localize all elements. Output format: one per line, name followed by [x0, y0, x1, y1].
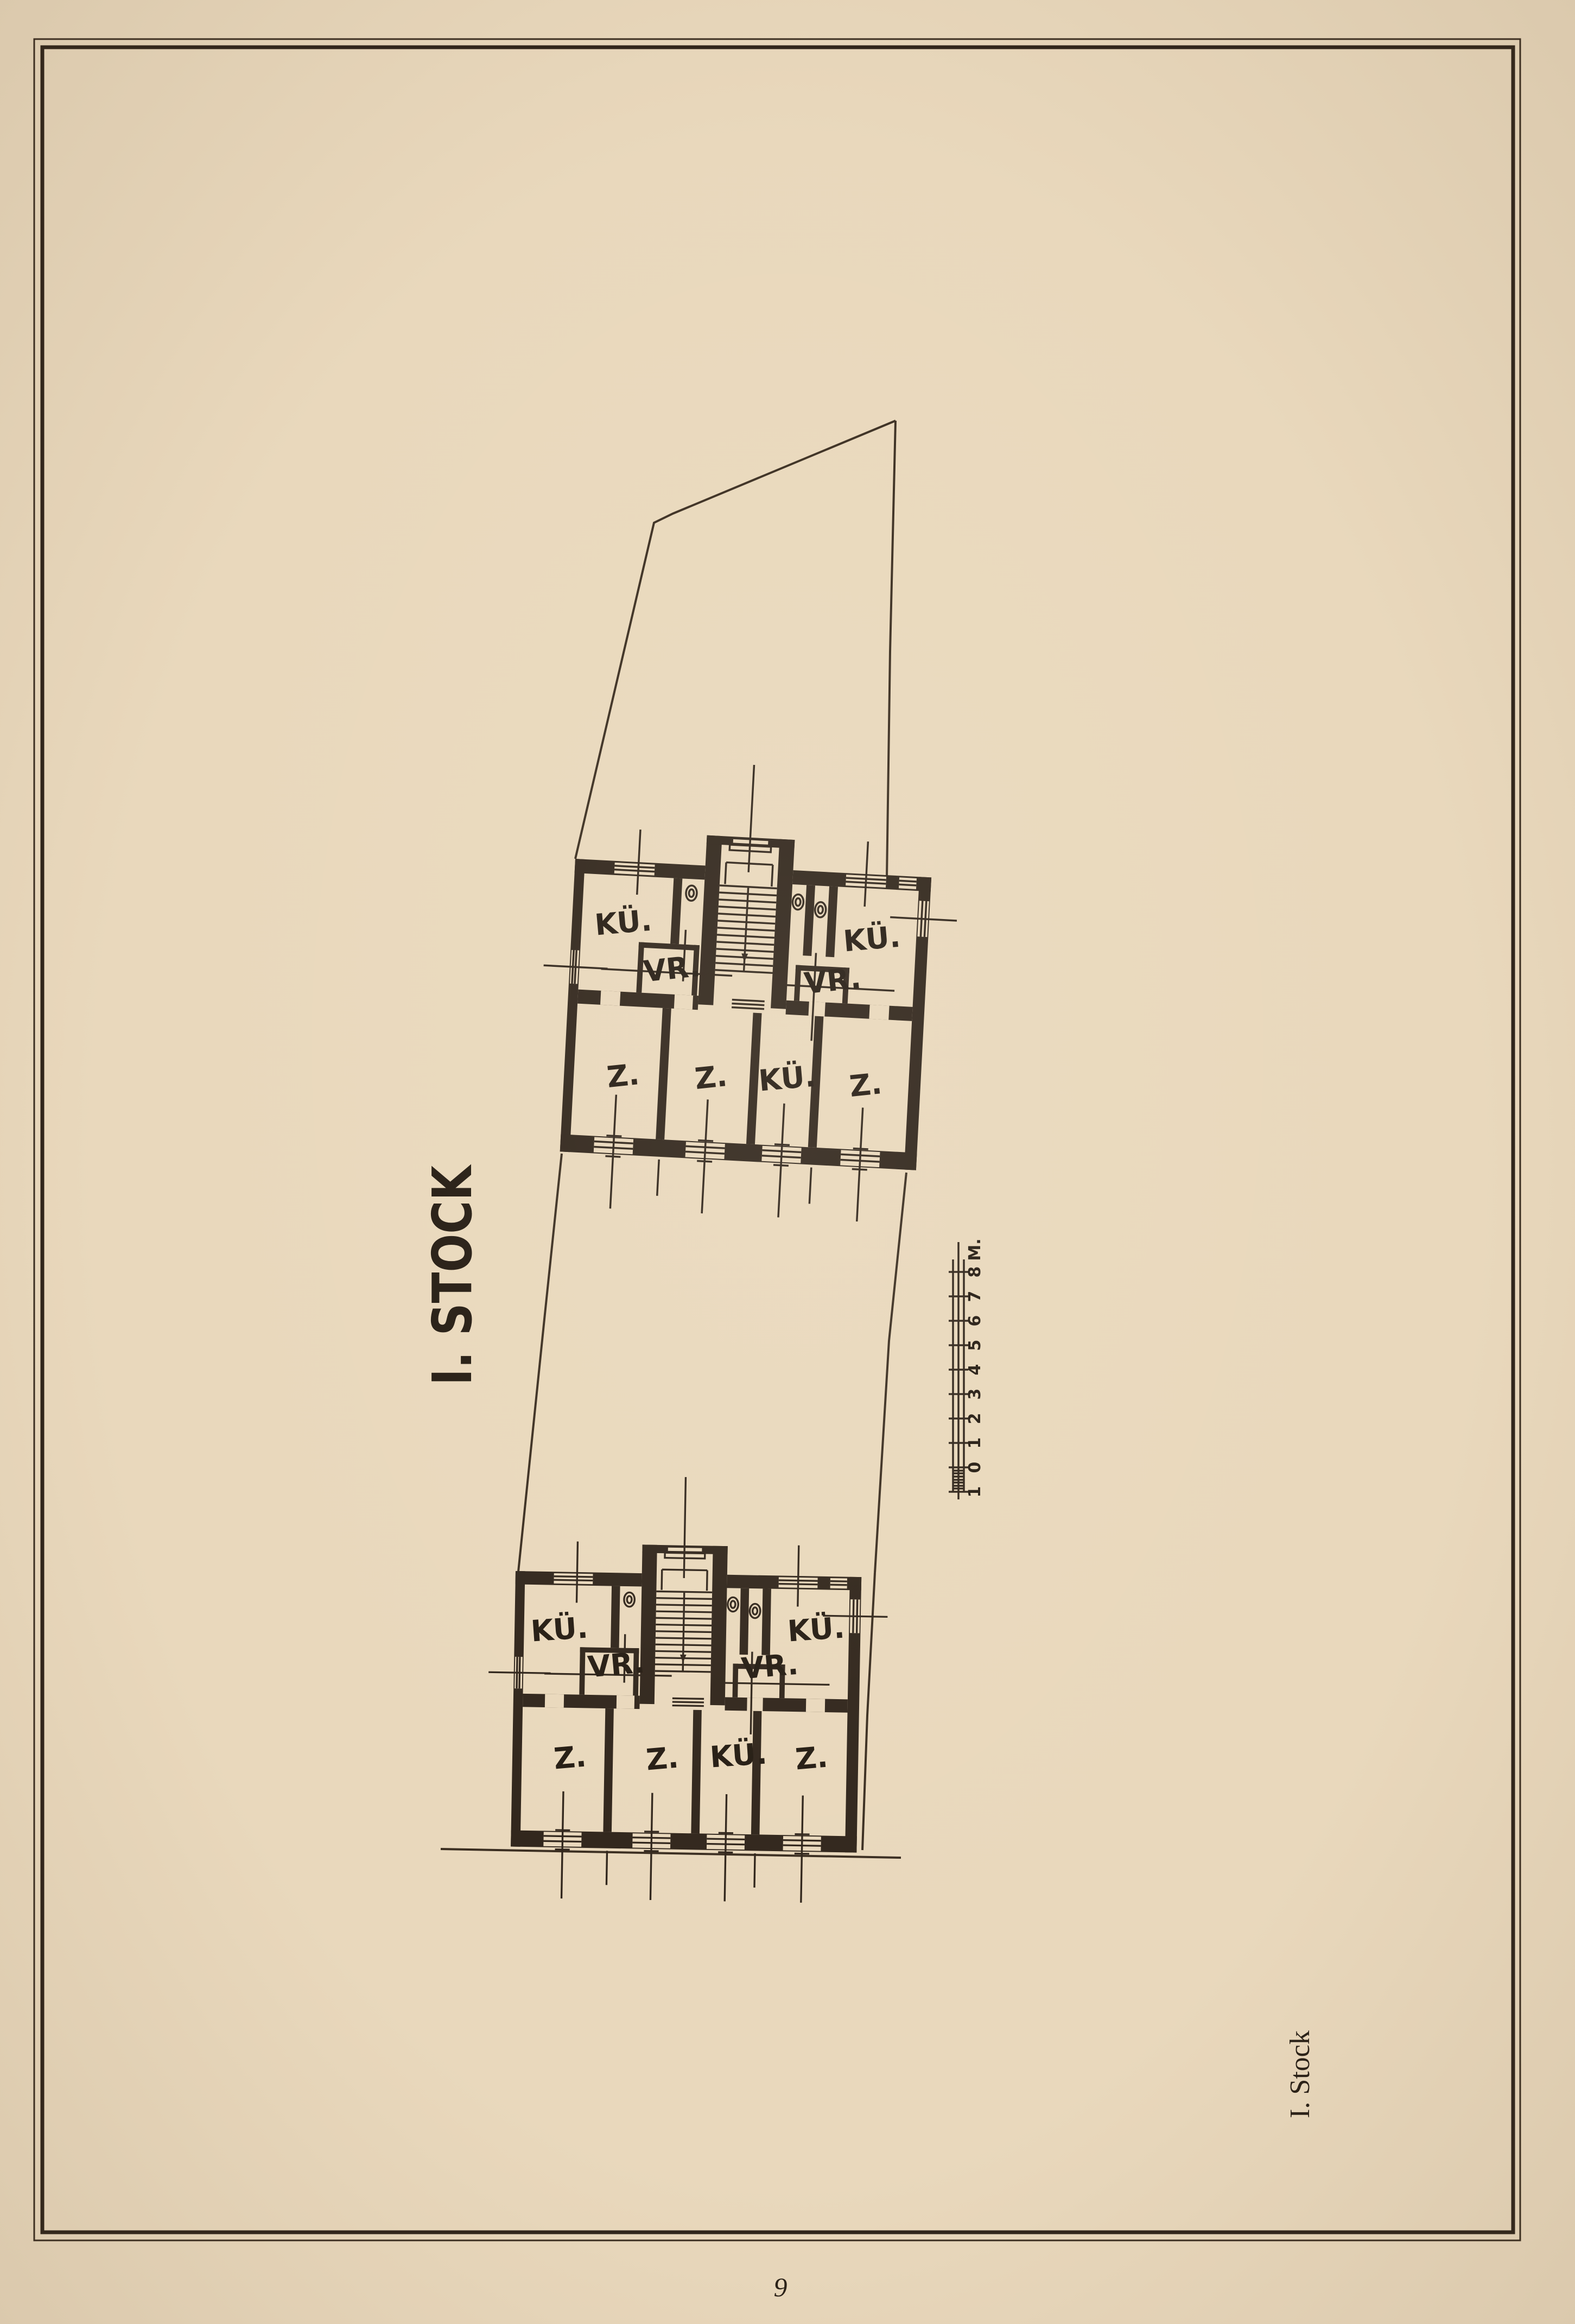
floor-title: I. STOCK — [421, 1164, 484, 1385]
scale-tick-label: 5 — [966, 1340, 985, 1351]
room-label-room-2: Z. — [693, 1059, 729, 1096]
room-label-vestibule-left: VR. — [642, 949, 702, 989]
room-label-kitchen-right: KÜ. — [786, 1610, 846, 1648]
scale-tick-label: 3 — [966, 1389, 985, 1400]
room-label-kitchen-right: KÜ. — [842, 920, 901, 959]
scanned-book-page: KÜ. VR. KÜ. VR. Z. Z. KÜ. Z. KÜ. VR. KÜ.… — [0, 0, 1575, 2324]
scale-tick-label: 6 — [966, 1315, 985, 1327]
room-label-kitchen-middle: KÜ. — [709, 1736, 768, 1774]
floor-plan-upper — [531, 755, 964, 1226]
room-label-kitchen-left: KÜ. — [593, 903, 653, 942]
room-label-room-1: Z. — [605, 1057, 641, 1094]
scale-tick-label: 2 — [966, 1413, 985, 1424]
room-label-room-3: Z. — [848, 1066, 884, 1104]
room-label-room-1: Z. — [552, 1739, 588, 1776]
scale-tick-label: 1 — [966, 1438, 985, 1449]
room-labels-lower: KÜ. VR. KÜ. VR. Z. Z. KÜ. Z. — [530, 1610, 846, 1777]
room-label-room-3: Z. — [794, 1740, 829, 1777]
floor-plan-drawing: KÜ. VR. KÜ. VR. Z. Z. KÜ. Z. KÜ. VR. KÜ.… — [0, 0, 1575, 2324]
page-border-frame — [34, 39, 1520, 2240]
room-label-vestibule-right: VR. — [803, 961, 863, 1001]
room-label-kitchen-middle: KÜ. — [757, 1059, 817, 1098]
scale-tick-label: 8 — [966, 1267, 985, 1278]
room-label-vestibule-right: VR. — [740, 1647, 799, 1686]
scale-tick-label: 7 — [966, 1291, 985, 1302]
scale-unit-label: M. — [966, 1238, 985, 1261]
side-caption: I. Stock — [1285, 2030, 1316, 2118]
scale-tick-label: 4 — [966, 1364, 985, 1376]
floor-plan-lower — [485, 1474, 890, 1904]
scale-tick-label: 1 — [966, 1486, 985, 1498]
scale-bar-subdivisions — [953, 1471, 964, 1489]
scale-bar-labels: 1 0 1 2 3 4 5 6 7 8 M. — [966, 1238, 985, 1497]
room-label-room-2: Z. — [645, 1740, 680, 1777]
scale-tick-label: 0 — [966, 1462, 985, 1473]
page-number: 9 — [774, 2272, 788, 2302]
room-label-vestibule-left: VR. — [586, 1645, 646, 1685]
room-label-kitchen-left: KÜ. — [530, 1610, 589, 1648]
scale-bar: 1 0 1 2 3 4 5 6 7 8 M. — [949, 1238, 985, 1499]
